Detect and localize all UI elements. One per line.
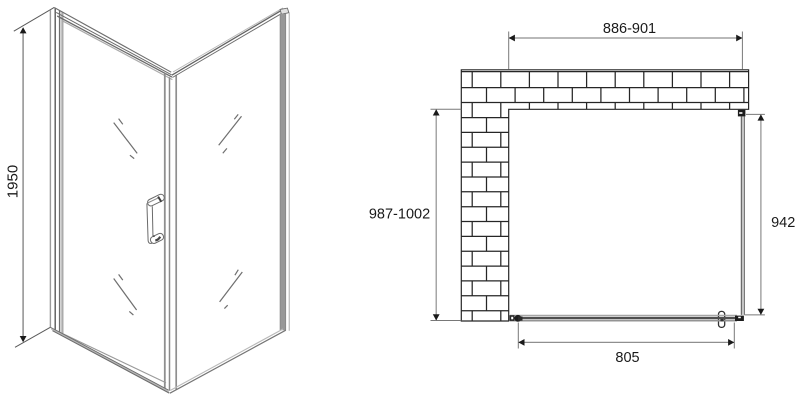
- svg-text:1950: 1950: [5, 165, 22, 198]
- svg-text:886-901: 886-901: [603, 21, 656, 37]
- svg-text:805: 805: [615, 350, 639, 366]
- svg-text:942: 942: [771, 215, 795, 231]
- svg-text:987-1002: 987-1002: [369, 206, 430, 222]
